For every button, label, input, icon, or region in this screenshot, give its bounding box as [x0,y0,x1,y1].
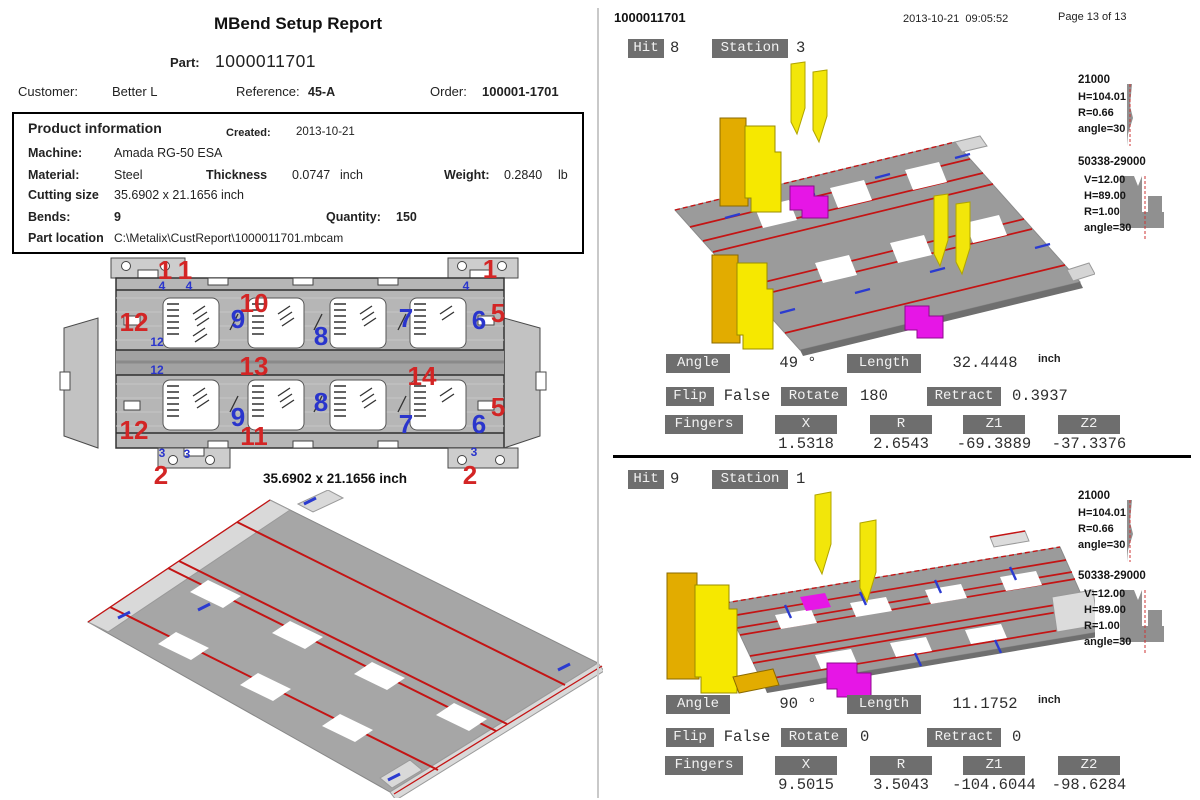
angle-label: Angle [666,354,730,373]
header-datetime: 2013-10-21 09:05:52 [903,13,1008,25]
product-info-box: Product information Created: 2013-10-21 … [12,112,584,254]
product-info-heading: Product information [28,120,162,136]
thickness-label: Thickness [206,168,267,182]
bend-number-annotation: 13 [240,353,269,379]
column-r-label: R [870,415,932,434]
thickness-unit: inch [340,168,363,182]
rotate-label: Rotate [781,728,847,747]
bends-label: Bends: [28,210,70,224]
flat-annotations: 1114441012987651213141298765121133322 [58,256,550,492]
bend-number-annotation: 4 [159,280,166,292]
bend-number-annotation: 1 [483,256,497,282]
column-x-label: X [775,756,837,775]
finger-r-value: 3.5043 [855,776,947,795]
page-separator [597,8,599,798]
bend-number-annotation: 9 [231,306,245,332]
bend-number-annotation: 5 [491,394,505,420]
bend-number-annotation: 3 [159,447,166,459]
hit-value: 8 [670,39,679,58]
retract-label: Retract [927,728,1001,747]
flat-pattern-container: 1114441012987651213141298765121133322 [58,256,550,492]
angle-value: 90 ° [768,695,828,714]
bend-number-annotation: 3 [471,446,478,458]
fingers-label: Fingers [665,756,743,775]
bend-number-annotation: 8 [314,389,328,415]
length-unit: inch [1038,353,1061,365]
die-name: 50338-29000 [1078,570,1146,582]
bend-number-annotation: 11 [240,423,268,449]
header-page-indicator: Page 13 of 13 [1058,11,1127,23]
rotate-value: 180 [860,387,888,406]
bend-number-annotation: 7 [399,305,413,331]
part-location-label: Part location [28,231,104,245]
bend-scene-hit8 [615,58,1095,356]
flip-label: Flip [666,387,714,406]
flat-size-label: 35.6902 x 21.1656 inch [135,471,535,486]
station-value: 3 [796,39,805,58]
punch-spec: R=0.66 [1078,523,1114,535]
bend-number-annotation: 12 [120,309,149,335]
die-spec: angle=30 [1084,222,1131,234]
length-label: Length [847,354,921,373]
flip-label: Flip [666,728,714,747]
die-name: 50338-29000 [1078,156,1146,168]
weight-value: 0.2840 [504,168,542,182]
angle-value: 49 ° [768,354,828,373]
bend-number-annotation: 7 [399,411,413,437]
length-value: 32.4448 [935,354,1035,373]
column-z2-label: Z2 [1058,415,1120,434]
length-value: 11.1752 [935,695,1035,714]
isometric-part-view [58,490,603,798]
machine-label: Machine: [28,146,82,160]
bend-number-annotation: 14 [408,363,437,389]
punch-name: 21000 [1078,74,1110,86]
bend-number-annotation: 4 [463,280,470,292]
finger-x-value: 1.5318 [760,435,852,454]
cutting-size-value: 35.6902 x 21.1656 inch [114,188,244,202]
bend-number-annotation: 12 [150,364,163,376]
reference-label: Reference: [236,84,300,99]
bends-value: 9 [114,210,121,224]
bend-number-annotation: 3 [184,448,191,460]
part-location-value: C:\Metalix\CustReport\1000011701.mbcam [114,231,343,245]
punch-spec: H=104.01 [1078,507,1126,519]
retract-value: 0.3937 [1012,387,1068,406]
punch-name: 21000 [1078,490,1110,502]
finger-z1-value: -104.6044 [948,776,1040,795]
bend-number-annotation: 4 [186,280,193,292]
finger-z1-value: -69.3889 [948,435,1040,454]
machine-value: Amada RG-50 ESA [114,146,222,160]
quantity-label: Quantity: [326,210,381,224]
column-x-label: X [775,415,837,434]
fingers-label: Fingers [665,415,743,434]
report-title: MBend Setup Report [0,14,596,34]
column-z1-label: Z1 [963,415,1025,434]
punch-spec: R=0.66 [1078,107,1114,119]
length-unit: inch [1038,694,1061,706]
weight-label: Weight: [444,168,490,182]
angle-label: Angle [666,695,730,714]
column-z1-label: Z1 [963,756,1025,775]
finger-x-value: 9.5015 [760,776,852,795]
rotate-value: 0 [860,728,869,747]
bend-number-annotation: 6 [472,411,486,437]
bend-scene-hit9 [615,485,1095,700]
die-spec: H=89.00 [1084,190,1126,202]
bend-number-annotation: 12 [150,336,163,348]
station-label: Station [712,39,788,58]
customer-label: Customer: [18,84,78,99]
customer-value: Better L [112,84,158,99]
cutting-size-label: Cutting size [28,188,99,202]
punch-spec: H=104.01 [1078,91,1126,103]
flip-value: False [716,387,778,406]
rotate-label: Rotate [781,387,847,406]
finger-z2-value: -98.6284 [1043,776,1135,795]
bend-number-annotation: 8 [314,323,328,349]
order-value: 100001-1701 [482,84,559,99]
mbend-setup-report-page: MBend Setup Report Part: 1000011701 Cust… [0,0,1200,800]
finger-r-value: 2.6543 [855,435,947,454]
weight-unit: lb [558,168,568,182]
retract-label: Retract [927,387,1001,406]
column-z2-label: Z2 [1058,756,1120,775]
die-spec: angle=30 [1084,636,1131,648]
finger-z2-value: -37.3376 [1043,435,1135,454]
part-value: 1000011701 [215,51,316,72]
panel-divider [613,455,1191,458]
order-label: Order: [430,84,467,99]
part-label: Part: [170,55,200,70]
die-spec: V=12.00 [1084,174,1125,186]
punch-spec: angle=30 [1078,123,1125,135]
bend-number-annotation: 6 [472,307,486,333]
reference-value: 45-A [308,85,335,99]
punch-spec: angle=30 [1078,539,1125,551]
bend-number-annotation: 5 [491,300,505,326]
hit-label: Hit [628,39,664,58]
retract-value: 0 [1012,728,1021,747]
die-spec: R=1.00 [1084,206,1120,218]
thickness-value: 0.0747 [292,168,330,182]
header-part-number: 1000011701 [614,10,686,25]
quantity-value: 150 [396,210,417,224]
die-spec: V=12.00 [1084,588,1125,600]
created-value: 2013-10-21 [296,126,355,138]
die-spec: H=89.00 [1084,604,1126,616]
created-label: Created: [226,127,271,139]
die-spec: R=1.00 [1084,620,1120,632]
flip-value: False [716,728,778,747]
bend-number-annotation: 12 [120,417,149,443]
column-r-label: R [870,756,932,775]
material-value: Steel [114,168,143,182]
length-label: Length [847,695,921,714]
material-label: Material: [28,168,79,182]
